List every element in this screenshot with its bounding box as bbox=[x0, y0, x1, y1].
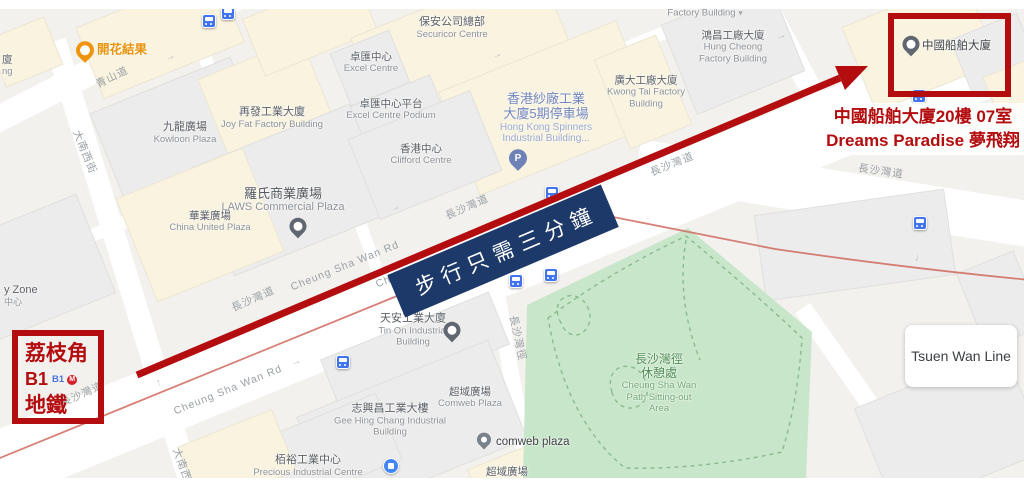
place-label-text: Hong Kong Spinners Industrial Building..… bbox=[496, 122, 596, 146]
transit-stop-icon[interactable] bbox=[544, 268, 558, 282]
road-label: 長沙灣道 bbox=[443, 191, 491, 223]
place-label-text: 卓匯中心平台 bbox=[346, 98, 435, 110]
place-label-text: 香港中心 bbox=[390, 143, 451, 155]
poi-label-blossom[interactable]: 開花結果 bbox=[97, 43, 147, 58]
map-exit-b1-label: B1 bbox=[52, 374, 64, 386]
destination-note-line1: 中國船舶大廈20樓 07室 bbox=[824, 105, 1022, 129]
place-label-partial[interactable]: 超域廣場 bbox=[486, 466, 528, 478]
park-label[interactable]: 長沙灣徑休憩處Cheung Sha Wan Path Sitting-out A… bbox=[621, 352, 697, 414]
bottom-margin bbox=[0, 478, 1024, 491]
place-label[interactable]: 栢裕工業中心Precious Industrial Centre bbox=[233, 454, 383, 478]
place-label-text: Gee Hing Chang Industrial Building bbox=[330, 415, 450, 437]
oneway-arrow-icon: → bbox=[912, 252, 925, 264]
place-label[interactable]: 卓匯中心平台Excel Centre Podium bbox=[346, 98, 435, 122]
origin-highlight-box: 荔枝角 B1 B1 M 地鐵 bbox=[12, 330, 104, 424]
place-label-text: 鴻昌工廠大廈 bbox=[690, 30, 776, 42]
place-label-text: 超域廣場 bbox=[486, 466, 528, 478]
place-label-partial[interactable]: 中心y Zone bbox=[4, 284, 38, 308]
place-label-text: 華業廣場 bbox=[160, 210, 260, 222]
map-canvas[interactable]: 步行只需三分鐘 中國船舶大廈20樓 07室 Dreams Paradise 夢飛… bbox=[0, 0, 1024, 491]
place-label-text: Joy Fat Factory Building bbox=[202, 119, 342, 130]
poi-label-comweb[interactable]: comweb plaza bbox=[496, 436, 570, 450]
place-label[interactable]: 華業廣場China United Plaza bbox=[160, 210, 260, 234]
place-label-text: Hung Cheong Factory Building bbox=[690, 42, 776, 64]
place-label-partial[interactable]: Factory Building▾ bbox=[667, 7, 742, 18]
place-label-text: 開花結果 bbox=[97, 43, 147, 58]
store-icon[interactable] bbox=[383, 458, 399, 474]
place-label-text: 中心 bbox=[4, 297, 38, 308]
transit-line-card: Tsuen Wan Line bbox=[905, 325, 1017, 387]
parking-pin-icon[interactable] bbox=[505, 145, 530, 170]
place-label[interactable]: 廣大工廠大廈Kwong Tai Factory Building bbox=[607, 75, 685, 110]
place-label-text: 休憩處 bbox=[621, 366, 697, 380]
map-screenshot: 步行只需三分鐘 中國船舶大廈20樓 07室 Dreams Paradise 夢飛… bbox=[0, 0, 1024, 491]
poi-caret-icon: ▾ bbox=[739, 8, 743, 17]
destination-note: 中國船舶大廈20樓 07室 Dreams Paradise 夢飛翔 bbox=[822, 103, 1024, 155]
transit-stop-icon[interactable] bbox=[509, 274, 523, 288]
place-label[interactable]: 鴻昌工廠大廈Hung Cheong Factory Building bbox=[690, 30, 776, 65]
place-label-text: Kwong Tai Factory Building bbox=[607, 87, 685, 109]
parking-place-label[interactable]: 香港紗廠工業大廈5期停車場Hong Kong Spinners Industri… bbox=[496, 91, 596, 145]
place-label[interactable]: 超域廣場Comweb Plaza bbox=[425, 386, 515, 410]
place-label-text: 再發工業大廈 bbox=[202, 106, 342, 119]
place-label[interactable]: 卓匯中心Excel Centre bbox=[344, 51, 398, 75]
place-label-text: 長沙灣徑 bbox=[621, 352, 697, 366]
place-label-text: Kowloon Plaza bbox=[154, 134, 217, 145]
transit-stop-icon[interactable] bbox=[545, 186, 559, 200]
origin-area-label: 荔枝角 bbox=[25, 340, 98, 368]
place-label-text: China United Plaza bbox=[160, 223, 260, 234]
place-label-partial[interactable]: 廈ng bbox=[2, 54, 13, 78]
transit-stop-icon[interactable] bbox=[336, 355, 350, 369]
place-label-text: Cheung Sha Wan Path Sitting-out Area bbox=[621, 380, 697, 414]
place-label-text: Excel Centre bbox=[344, 64, 398, 75]
place-label-text: Comweb Plaza bbox=[425, 399, 515, 410]
place-label-text: y Zone bbox=[4, 284, 38, 297]
place-label-text: 保安公司總部 bbox=[416, 16, 487, 29]
road-label: 長沙灣道 bbox=[229, 283, 277, 315]
origin-exit-row: B1 B1 M bbox=[25, 368, 98, 391]
place-label-text: 羅氏商業廣場 bbox=[208, 186, 358, 201]
place-label-text: 香港紗廠工業 bbox=[496, 91, 596, 106]
place-label-text: 超域廣場 bbox=[425, 386, 515, 398]
place-label-text: 廣大工廠大廈 bbox=[607, 75, 685, 87]
place-label-text: Factory Building bbox=[667, 7, 735, 18]
transit-stop-icon[interactable] bbox=[202, 14, 216, 28]
transit-stop-icon[interactable] bbox=[913, 216, 927, 230]
place-label-text: Excel Centre Podium bbox=[346, 111, 435, 122]
top-margin bbox=[0, 0, 1024, 9]
place-label-text: comweb plaza bbox=[496, 436, 570, 450]
origin-mode-label: 地鐵 bbox=[25, 392, 98, 420]
place-label-text: Clifford Centre bbox=[390, 156, 451, 167]
place-label-text: Precious Industrial Centre bbox=[233, 467, 383, 478]
place-label[interactable]: 再發工業大廈Joy Fat Factory Building bbox=[202, 106, 342, 130]
place-label[interactable]: 香港中心Clifford Centre bbox=[390, 143, 451, 167]
place-label[interactable]: 保安公司總部Securicor Centre bbox=[416, 16, 487, 40]
place-label-text: 廈 bbox=[2, 54, 13, 66]
place-label-text: Securicor Centre bbox=[416, 29, 487, 40]
place-label-text: 栢裕工業中心 bbox=[233, 454, 383, 467]
destination-note-line2: Dreams Paradise 夢飛翔 bbox=[824, 129, 1022, 153]
destination-highlight-box bbox=[888, 13, 1011, 97]
place-label-text: ng bbox=[2, 67, 13, 78]
origin-exit-label: B1 bbox=[25, 368, 48, 391]
place-label-text: 卓匯中心 bbox=[344, 51, 398, 63]
place-label-text: 大廈5期停車場 bbox=[496, 106, 596, 121]
mtr-logo-icon: M bbox=[67, 375, 77, 385]
